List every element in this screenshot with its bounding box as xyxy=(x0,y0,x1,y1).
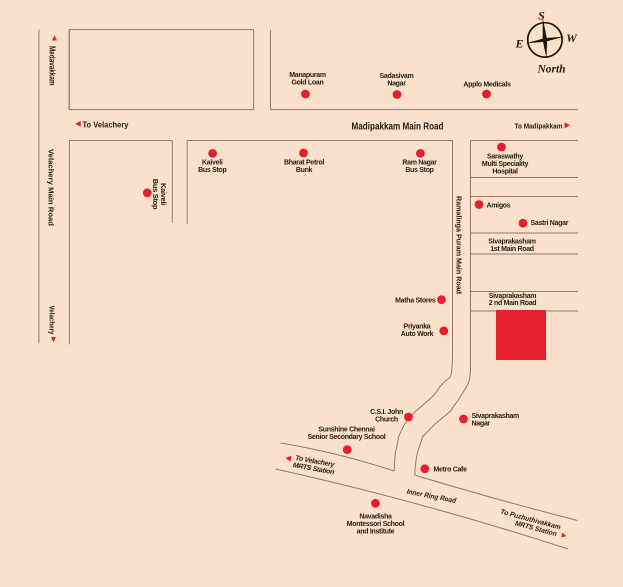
svg-text:1st Main Road: 1st Main Road xyxy=(490,246,534,253)
svg-text:Velachery: Velachery xyxy=(48,306,55,335)
svg-text:Sivaprakasham: Sivaprakasham xyxy=(472,413,520,420)
svg-text:2 nd Main Road: 2 nd Main Road xyxy=(489,300,537,307)
svg-text:S: S xyxy=(538,9,545,23)
svg-text:Sivaprakasham: Sivaprakasham xyxy=(488,238,536,245)
svg-text:Metro Cafe: Metro Cafe xyxy=(434,467,468,474)
svg-text:Sunshine Chennai: Sunshine Chennai xyxy=(318,426,375,433)
svg-text:Saraswathy: Saraswathy xyxy=(487,153,523,160)
svg-text:To Madipakkam: To Madipakkam xyxy=(515,123,563,130)
svg-text:Amigos: Amigos xyxy=(487,202,511,209)
svg-text:Ram Nagar: Ram Nagar xyxy=(402,160,437,167)
svg-text:Gold Loan: Gold Loan xyxy=(292,80,324,87)
svg-text:Bus Stop: Bus Stop xyxy=(151,179,160,210)
svg-text:Priyanka: Priyanka xyxy=(404,324,431,331)
svg-text:Ramalinga Puram Main Road: Ramalinga Puram Main Road xyxy=(455,196,462,294)
svg-text:North: North xyxy=(536,64,565,76)
svg-text:To Velachery: To Velachery xyxy=(83,119,129,129)
svg-text:and Institute: and Institute xyxy=(357,529,395,536)
svg-text:Matha Stores: Matha Stores xyxy=(395,297,436,304)
svg-text:Manapuram: Manapuram xyxy=(289,72,326,79)
svg-text:Sadasivam: Sadasivam xyxy=(380,73,414,80)
svg-text:Madipakkam Main Road: Madipakkam Main Road xyxy=(352,122,444,133)
svg-text:Bunk: Bunk xyxy=(296,167,313,174)
svg-text:Hospital: Hospital xyxy=(492,168,518,175)
svg-text:Nagar: Nagar xyxy=(387,81,406,88)
svg-text:E: E xyxy=(514,37,523,51)
svg-text:Bus Stop: Bus Stop xyxy=(405,167,433,174)
svg-text:Bharat Petrol: Bharat Petrol xyxy=(284,159,324,166)
svg-text:Church: Church xyxy=(375,417,398,424)
svg-text:Medavakkam: Medavakkam xyxy=(48,46,57,86)
svg-text:Montessori School: Montessori School xyxy=(347,521,405,528)
svg-text:Kaiveli: Kaiveli xyxy=(202,159,223,166)
svg-text:Sastri Nagar: Sastri Nagar xyxy=(531,220,569,227)
svg-text:Nagar: Nagar xyxy=(472,420,491,427)
svg-text:Applo Medicals: Applo Medicals xyxy=(463,82,511,89)
svg-text:Senior Secondary School: Senior Secondary School xyxy=(308,434,386,441)
svg-text:Navadisha: Navadisha xyxy=(359,514,392,521)
svg-text:Bus Stop: Bus Stop xyxy=(198,167,226,174)
svg-text:C.S.I. John: C.S.I. John xyxy=(370,409,403,416)
svg-text:W: W xyxy=(566,31,578,45)
svg-text:Velachery Main Road: Velachery Main Road xyxy=(47,149,56,226)
svg-text:Auto Work: Auto Work xyxy=(401,331,434,338)
svg-text:Multi Speciality: Multi Speciality xyxy=(482,161,529,168)
